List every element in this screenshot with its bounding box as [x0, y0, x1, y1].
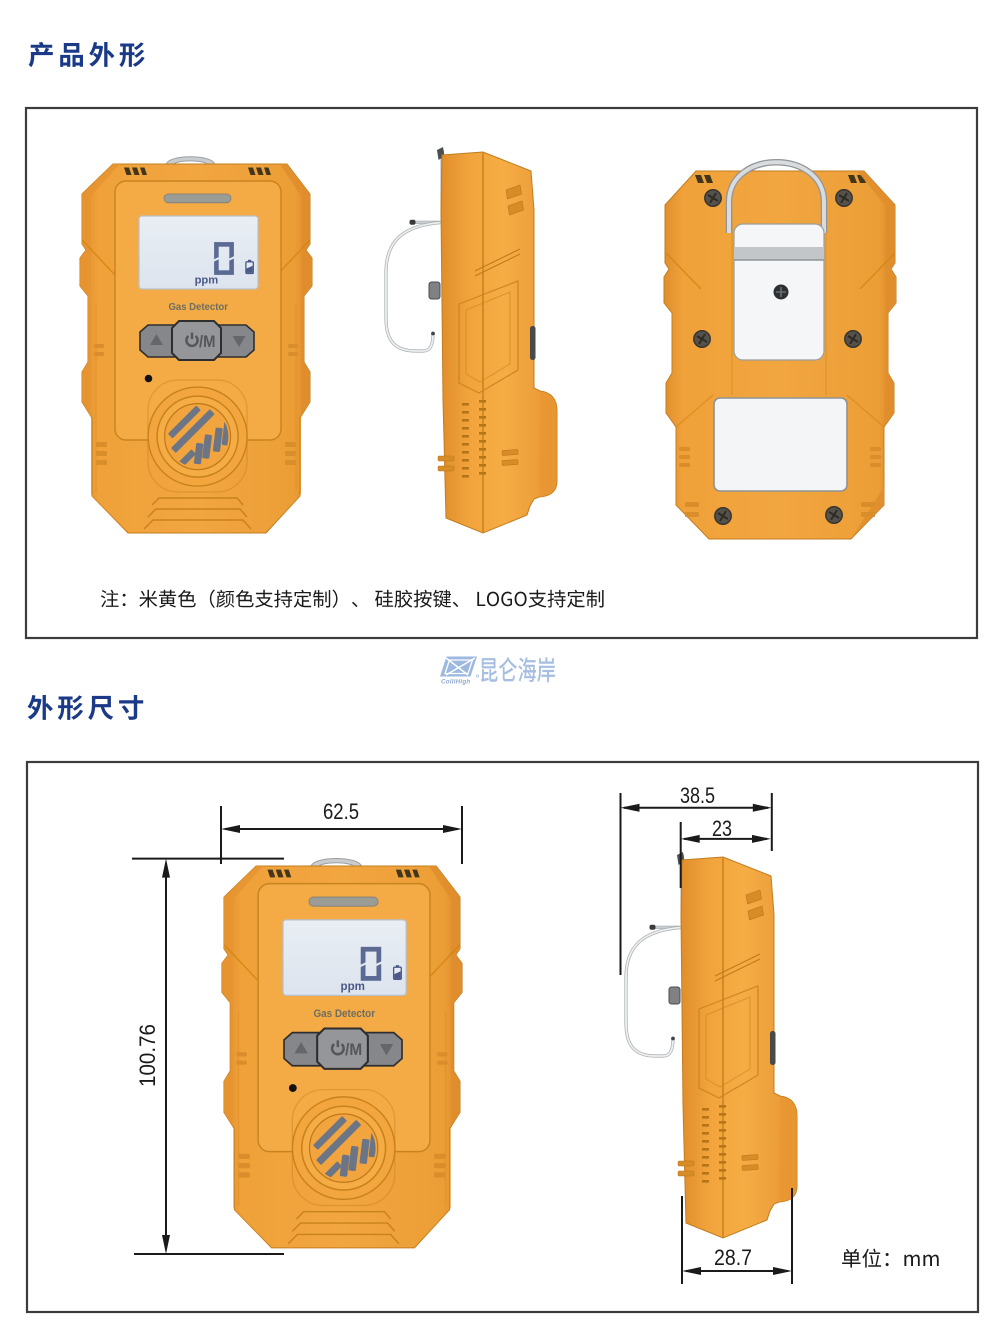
svg-text:62.5: 62.5: [323, 799, 359, 824]
svg-text:ColliHigh: ColliHigh: [441, 679, 470, 686]
svg-text:100.76: 100.76: [135, 1024, 160, 1087]
svg-text:28.7: 28.7: [714, 1245, 752, 1270]
svg-text:38.5: 38.5: [680, 783, 715, 808]
svg-text:23: 23: [712, 816, 732, 841]
